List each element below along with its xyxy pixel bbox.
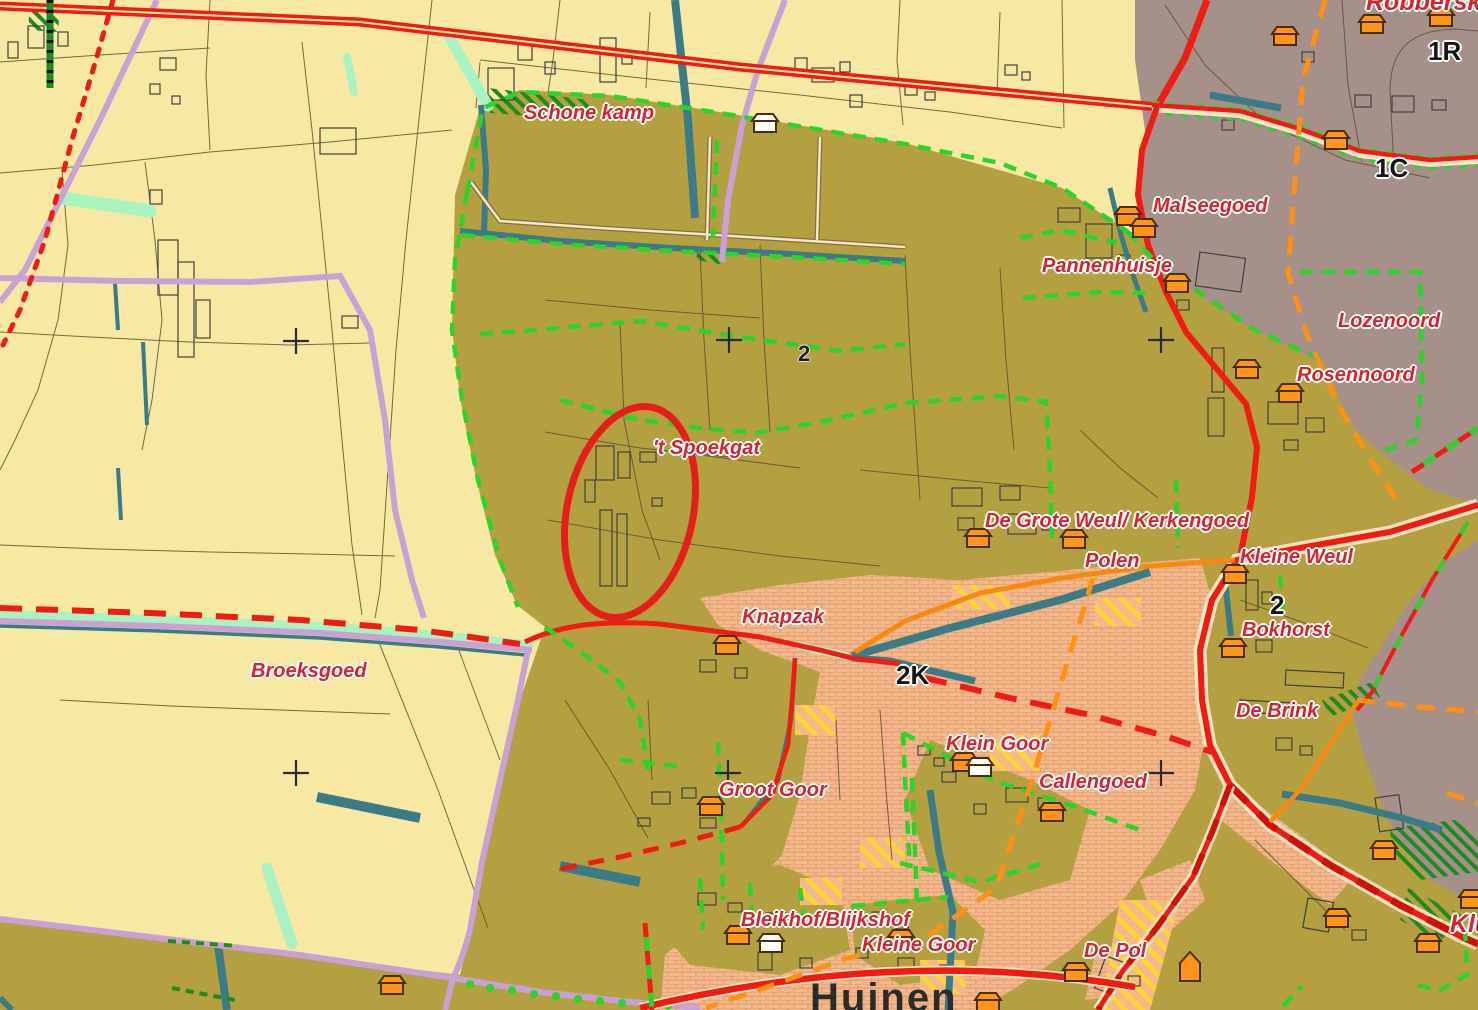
- house-icon-white: [752, 114, 778, 132]
- house-icon: [1459, 890, 1478, 908]
- house-icon: [1272, 27, 1298, 45]
- house-icon: [1063, 963, 1089, 981]
- house-icon: [379, 976, 405, 994]
- map-viewport[interactable]: Schone kampRobberskampMalseegoedPannenhu…: [0, 0, 1478, 1010]
- house-icon: [975, 993, 1001, 1010]
- house-icon: [698, 797, 724, 815]
- house-icon: [1164, 274, 1190, 292]
- house-icon: [714, 636, 740, 654]
- house-icon-white: [967, 758, 993, 776]
- house-icon: [888, 930, 914, 948]
- house-icon: [725, 926, 751, 944]
- house-icon: [1371, 841, 1397, 859]
- house-icon: [1220, 639, 1246, 657]
- house-icon: [1061, 530, 1087, 548]
- house-icon: [1039, 803, 1065, 821]
- house-icon: [1415, 934, 1441, 952]
- house-icon: [1324, 909, 1350, 927]
- house-icon-white: [758, 934, 784, 952]
- house-icon: [965, 529, 991, 547]
- house-icon: [1234, 360, 1260, 378]
- house-icon: [1428, 8, 1454, 26]
- house-icon: [1277, 384, 1303, 402]
- house-icon: [1131, 219, 1157, 237]
- house-icon: [1222, 565, 1248, 583]
- house-icon: [1359, 15, 1385, 33]
- house-icon: [1323, 131, 1349, 149]
- map-canvas: [0, 0, 1478, 1010]
